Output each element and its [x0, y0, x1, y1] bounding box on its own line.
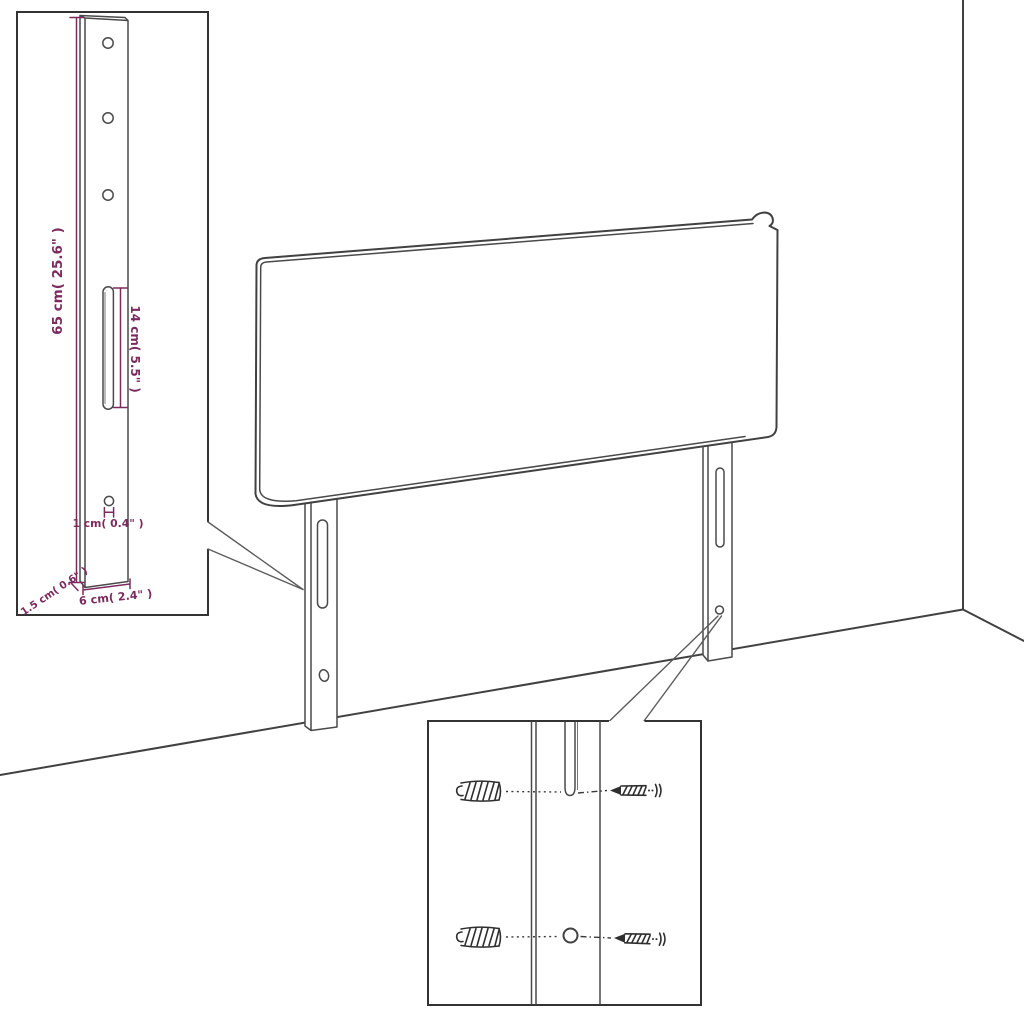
- left-leg-face: [305, 500, 337, 731]
- diagram-canvas: 65 cm( 25.6" ) 14 cm( 5.5" ) 1 cm( 0.4" …: [0, 0, 1024, 1024]
- panel-piping-seam: [260, 224, 753, 502]
- mounting-callout-line-left: [610, 616, 719, 721]
- headboard-right-leg: [703, 443, 732, 662]
- height-dimension-label: 65 cm( 25.6" ): [50, 227, 66, 335]
- hole-dimension-label: 1 cm( 0.4" ): [72, 517, 143, 530]
- bracket-callout: [208, 522, 303, 590]
- mounting-callout-line-right: [644, 616, 722, 721]
- headboard-left-leg: [305, 500, 337, 731]
- assembly-diagram: 65 cm( 25.6" ) 14 cm( 5.5" ) 1 cm( 0.4" …: [0, 0, 1024, 1024]
- slot-dimension-label: 14 cm( 5.5" ): [128, 305, 142, 392]
- mounting-detail-inset: [428, 721, 701, 1005]
- bracket-detail-inset: 65 cm( 25.6" ) 14 cm( 5.5" ) 1 cm( 0.4" …: [17, 12, 208, 618]
- headboard-panel: [256, 213, 778, 507]
- floor-line-right: [963, 610, 1024, 642]
